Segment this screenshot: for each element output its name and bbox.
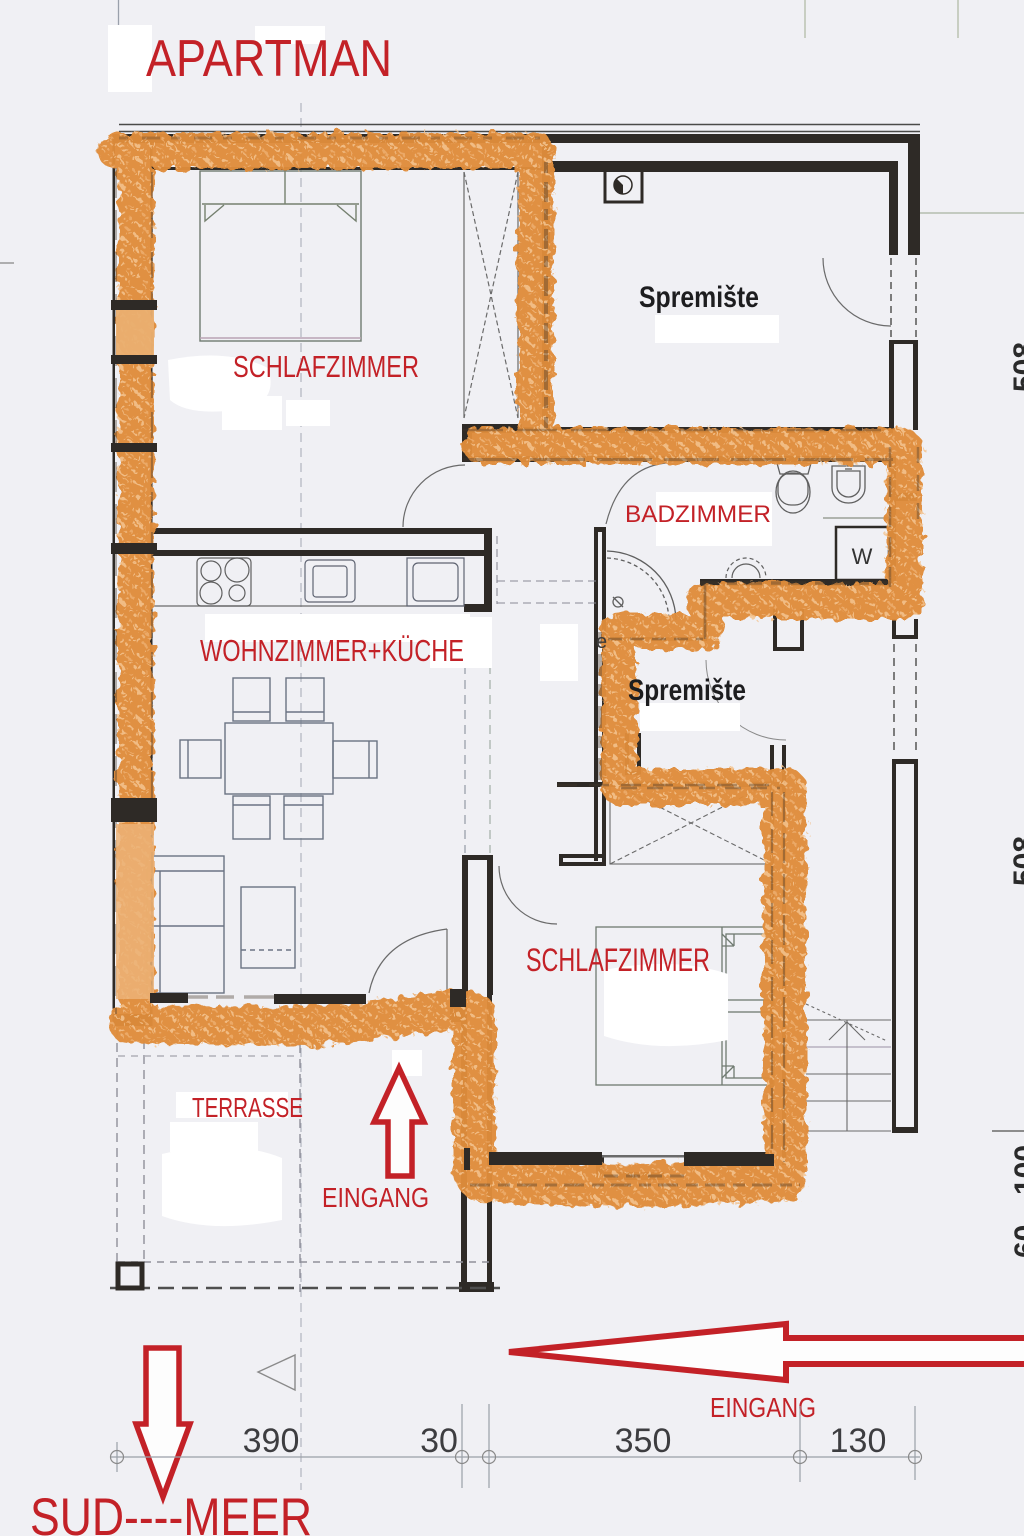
svg-text:TERRASSE: TERRASSE xyxy=(192,1092,303,1123)
svg-text:390: 390 xyxy=(243,1422,300,1460)
svg-text:WOHNZIMMER+KÜCHE: WOHNZIMMER+KÜCHE xyxy=(200,633,464,668)
svg-text:SCHLAFZIMMER: SCHLAFZIMMER xyxy=(526,942,710,978)
svg-text:SCHLAFZIMMER: SCHLAFZIMMER xyxy=(233,349,419,384)
svg-text:100: 100 xyxy=(1009,1145,1024,1195)
svg-text:APARTMAN: APARTMAN xyxy=(146,30,392,88)
svg-text:508: 508 xyxy=(1008,342,1024,392)
svg-text:30: 30 xyxy=(420,1422,458,1460)
svg-text:508: 508 xyxy=(1008,836,1024,886)
svg-text:Spremište: Spremište xyxy=(639,281,759,314)
svg-text:Spremište: Spremište xyxy=(628,674,746,707)
svg-text:W: W xyxy=(852,544,873,569)
svg-text:60: 60 xyxy=(1009,1225,1024,1258)
svg-text:350: 350 xyxy=(615,1422,672,1460)
svg-text:EINGANG: EINGANG xyxy=(322,1182,429,1213)
svg-text:e: e xyxy=(596,631,607,653)
svg-text:130: 130 xyxy=(830,1422,887,1460)
svg-text:SUD----MEER: SUD----MEER xyxy=(30,1488,312,1536)
svg-text:BADZIMMER: BADZIMMER xyxy=(625,501,771,528)
